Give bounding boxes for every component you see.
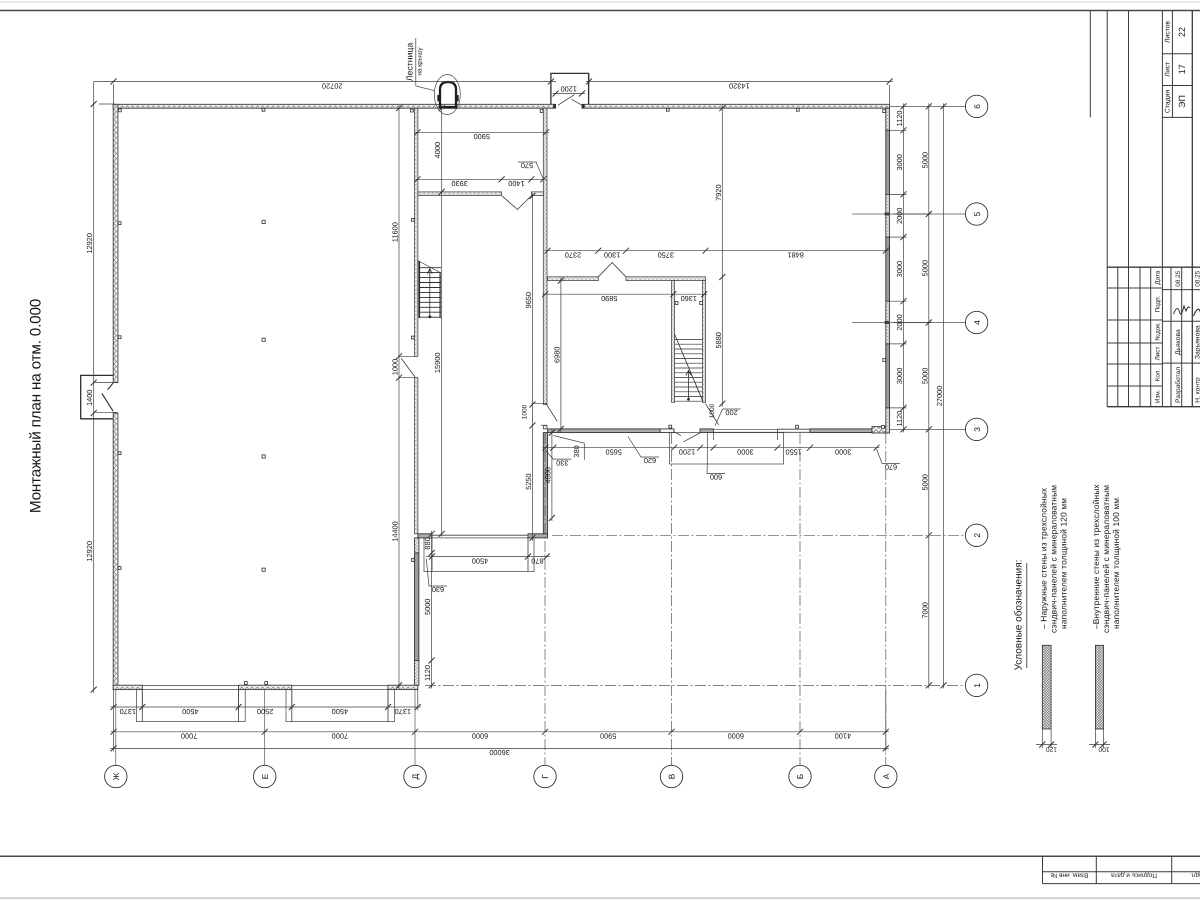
- svg-text:Лестница: Лестница: [404, 43, 414, 81]
- svg-text:11600: 11600: [391, 222, 400, 242]
- svg-text:Дьякова: Дьякова: [1175, 329, 1182, 355]
- svg-text:2370: 2370: [565, 251, 581, 260]
- svg-text:380: 380: [572, 445, 581, 457]
- svg-text:Зарьянова: Зарьянова: [1194, 325, 1200, 359]
- svg-text:наполнителем толщиной 120 мм: наполнителем толщиной 120 мм: [1058, 498, 1068, 629]
- svg-text:5000: 5000: [920, 368, 929, 384]
- svg-text:36000: 36000: [489, 748, 510, 757]
- svg-text:6000: 6000: [472, 732, 488, 741]
- svg-text:3000: 3000: [895, 261, 904, 277]
- svg-text:1: 1: [972, 683, 982, 688]
- svg-text:Н. контр: Н. контр: [1194, 377, 1200, 403]
- svg-text:5880: 5880: [714, 332, 723, 348]
- svg-text:1200: 1200: [679, 448, 695, 457]
- svg-text:Листов: Листов: [1165, 21, 1172, 43]
- svg-text:7000: 7000: [332, 732, 348, 741]
- svg-text:В: В: [667, 773, 677, 779]
- svg-text:3000: 3000: [737, 448, 753, 457]
- svg-text:1400: 1400: [508, 179, 524, 188]
- svg-text:Ж: Ж: [111, 772, 121, 780]
- svg-text:1370: 1370: [395, 707, 411, 716]
- svg-text:8481: 8481: [787, 251, 803, 260]
- svg-text:3000: 3000: [895, 154, 904, 170]
- svg-text:Е: Е: [260, 773, 270, 779]
- svg-text:1120: 1120: [895, 110, 904, 126]
- svg-text:12920: 12920: [85, 233, 94, 254]
- svg-text:330: 330: [556, 458, 568, 467]
- svg-text:4500: 4500: [332, 707, 348, 716]
- svg-text:6000: 6000: [728, 732, 744, 741]
- svg-text:1360: 1360: [681, 294, 697, 303]
- svg-text:5: 5: [972, 211, 982, 216]
- svg-text:Монтажный план на отм. 0.000: Монтажный план на отм. 0.000: [28, 299, 45, 513]
- svg-text:5000: 5000: [423, 599, 432, 615]
- svg-text:Д: Д: [410, 773, 420, 779]
- svg-text:570: 570: [521, 161, 533, 170]
- svg-text:12920: 12920: [85, 541, 94, 562]
- svg-text:880: 880: [423, 537, 432, 549]
- svg-text:Инв. № подл.: Инв. № подл.: [1190, 872, 1200, 879]
- svg-text:7000: 7000: [920, 602, 929, 618]
- svg-text:2000: 2000: [895, 208, 904, 224]
- svg-text:5650: 5650: [605, 448, 621, 457]
- svg-text:1120: 1120: [895, 411, 904, 427]
- svg-text:4500: 4500: [472, 556, 488, 565]
- svg-text:120: 120: [1046, 746, 1057, 753]
- svg-text:сэндвич-панелей с минераловатн: сэндвич-панелей с минераловатным: [1048, 485, 1058, 633]
- svg-text:1400: 1400: [85, 390, 94, 406]
- svg-text:Подпись и дата: Подпись и дата: [1111, 872, 1157, 879]
- svg-text:4000: 4000: [433, 142, 442, 158]
- svg-text:08.25: 08.25: [1194, 270, 1200, 286]
- svg-text:9650: 9650: [524, 292, 533, 308]
- svg-text:1550: 1550: [785, 448, 801, 457]
- svg-text:630: 630: [432, 585, 444, 594]
- svg-text:14320: 14320: [729, 81, 750, 90]
- svg-text:3750: 3750: [658, 251, 674, 260]
- svg-text:Б: Б: [795, 773, 805, 779]
- svg-text:1200: 1200: [561, 84, 577, 93]
- svg-text:– Наружные стены из трехслойны: – Наружные стены из трехслойных: [1038, 487, 1048, 629]
- svg-text:№док.: №док.: [1154, 322, 1161, 341]
- svg-text:20720: 20720: [322, 81, 343, 90]
- svg-text:3000: 3000: [895, 368, 904, 384]
- svg-text:3930: 3930: [451, 179, 467, 188]
- svg-text:Кол.: Кол.: [1154, 369, 1161, 382]
- svg-text:5000: 5000: [920, 474, 929, 490]
- svg-text:15900: 15900: [433, 353, 442, 374]
- svg-text:4: 4: [972, 320, 982, 325]
- svg-text:7920: 7920: [714, 184, 723, 200]
- svg-text:Лист: Лист: [1154, 347, 1161, 361]
- svg-text:5250: 5250: [524, 473, 533, 489]
- svg-text:Разработал: Разработал: [1175, 367, 1182, 403]
- svg-text:620: 620: [644, 456, 656, 465]
- svg-text:6: 6: [972, 104, 982, 109]
- svg-text:А: А: [881, 773, 891, 779]
- svg-text:08.25: 08.25: [1175, 270, 1182, 286]
- svg-text:3000: 3000: [835, 448, 851, 457]
- svg-text:ЭП: ЭП: [1177, 95, 1187, 108]
- svg-text:сэндвич-панелей с минераловатн: сэндвич-панелей с минераловатным: [1101, 485, 1111, 633]
- svg-text:на крышу: на крышу: [417, 47, 424, 76]
- svg-text:200: 200: [725, 408, 737, 417]
- svg-text:1000: 1000: [522, 404, 529, 419]
- svg-text:27000: 27000: [935, 386, 944, 407]
- svg-text:Г: Г: [540, 774, 550, 779]
- svg-text:5900: 5900: [600, 732, 616, 741]
- svg-text:2: 2: [972, 533, 982, 538]
- svg-text:870: 870: [531, 556, 543, 565]
- svg-text:1300: 1300: [604, 251, 620, 260]
- svg-text:22: 22: [1177, 27, 1187, 37]
- svg-text:6980: 6980: [552, 347, 561, 363]
- svg-text:4500: 4500: [182, 707, 198, 716]
- svg-text:Лист: Лист: [1165, 62, 1172, 77]
- svg-text:Дата: Дата: [1154, 270, 1161, 284]
- svg-text:670: 670: [885, 463, 897, 472]
- svg-text:Стадия: Стадия: [1165, 90, 1172, 113]
- svg-text:1000: 1000: [391, 359, 400, 375]
- svg-text:наполнителем толщиной 100 мм: наполнителем толщиной 100 мм: [1111, 498, 1121, 629]
- svg-text:1370: 1370: [120, 707, 136, 716]
- svg-text:2500: 2500: [257, 707, 273, 716]
- svg-text:4000: 4000: [543, 467, 552, 483]
- svg-text:1120: 1120: [423, 665, 432, 681]
- svg-text:Условные обозначения:: Условные обозначения:: [1014, 560, 1025, 671]
- svg-text:100: 100: [1098, 746, 1109, 753]
- svg-text:7000: 7000: [181, 732, 197, 741]
- svg-text:Подп.: Подп.: [1154, 295, 1161, 312]
- svg-text:5900: 5900: [474, 132, 490, 141]
- svg-text:–Внутренние стены из трехслойн: –Внутренние стены из трехслойных: [1091, 484, 1101, 629]
- svg-text:17: 17: [1177, 64, 1187, 74]
- svg-text:5890: 5890: [601, 294, 617, 303]
- svg-text:1000: 1000: [709, 403, 716, 418]
- svg-text:14400: 14400: [391, 521, 400, 542]
- svg-text:Взам. инв №: Взам. инв №: [1050, 872, 1088, 879]
- svg-text:600: 600: [710, 473, 722, 482]
- svg-text:5000: 5000: [920, 260, 929, 276]
- svg-text:Изм.: Изм.: [1154, 389, 1161, 403]
- svg-text:3: 3: [972, 427, 982, 432]
- svg-text:4100: 4100: [835, 732, 851, 741]
- svg-text:5000: 5000: [920, 152, 929, 168]
